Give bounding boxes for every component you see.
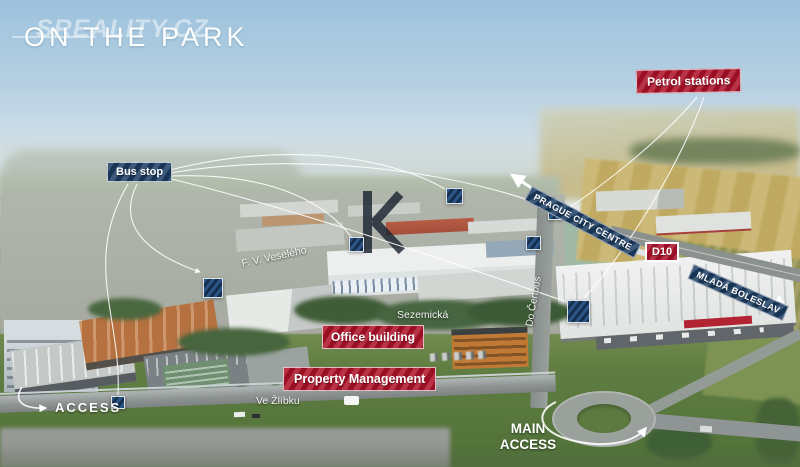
photo-vehicle-van	[344, 396, 359, 405]
label-bus-stop: Bus stop	[107, 162, 172, 182]
photo-building	[596, 188, 685, 211]
location-marker-icon	[349, 237, 364, 252]
photo-vehicle	[252, 414, 260, 418]
label-property-management: Property Management	[283, 367, 436, 391]
photo-distant-trees-right	[630, 138, 800, 164]
photo-trees	[88, 298, 162, 320]
photo-trees	[468, 298, 572, 326]
location-marker-icon	[526, 236, 541, 250]
photo-trees	[294, 296, 390, 324]
street-sezemicka: Sezemická	[397, 309, 448, 321]
photo-vehicle	[234, 412, 245, 417]
developer-logo-k-icon	[358, 190, 406, 256]
location-marker-icon	[446, 188, 463, 204]
sreality-watermark: SREALITY.CZ	[36, 15, 209, 44]
street-ve-zlibku: Ve Žlíbku	[256, 395, 300, 407]
label-office-building: Office building	[322, 325, 424, 349]
annotated-aerial-photo: Bus stop Petrol stations PRAGUE CITY CEN…	[0, 0, 800, 467]
photo-roundabout-inner	[577, 404, 631, 433]
photo-trees	[178, 328, 290, 356]
label-main-access: MAIN ACCESS	[490, 421, 566, 453]
label-petrol-stations: Petrol stations	[636, 68, 742, 94]
location-marker-icon	[203, 278, 223, 298]
photo-vehicle	[700, 426, 712, 433]
photo-foreground-blur	[0, 446, 800, 467]
label-access: ACCESS	[55, 400, 121, 415]
label-d10: D10	[645, 242, 679, 262]
photo-office-orange	[451, 327, 528, 370]
location-marker-icon	[567, 300, 590, 323]
